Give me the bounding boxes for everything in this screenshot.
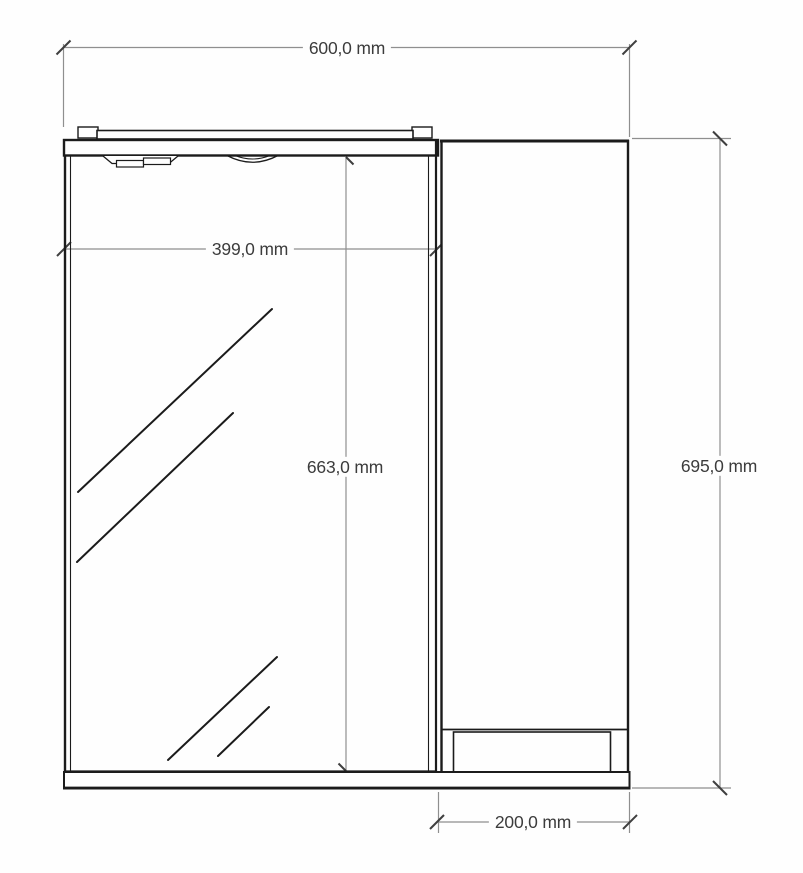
mirror-reflection-lines bbox=[77, 309, 277, 760]
dim-door-width-label: 399,0 mm bbox=[206, 239, 294, 259]
drawing-svg bbox=[0, 0, 803, 873]
side-cabinet bbox=[440, 141, 629, 774]
lamp-detail bbox=[103, 156, 178, 167]
technical-drawing-canvas: 600,0 mm 399,0 mm 663,0 mm 695,0 mm 200,… bbox=[0, 0, 803, 873]
dim-overall-width-label: 600,0 mm bbox=[303, 37, 391, 57]
drawer-front bbox=[454, 732, 611, 774]
dim-side-width-label: 200,0 mm bbox=[489, 812, 577, 832]
light-fixture bbox=[78, 127, 432, 139]
dim-door-height-label: 663,0 mm bbox=[301, 457, 389, 477]
top-panel bbox=[64, 140, 438, 156]
dim-overall-height-label: 695,0 mm bbox=[675, 456, 763, 476]
plinth bbox=[63, 772, 630, 789]
